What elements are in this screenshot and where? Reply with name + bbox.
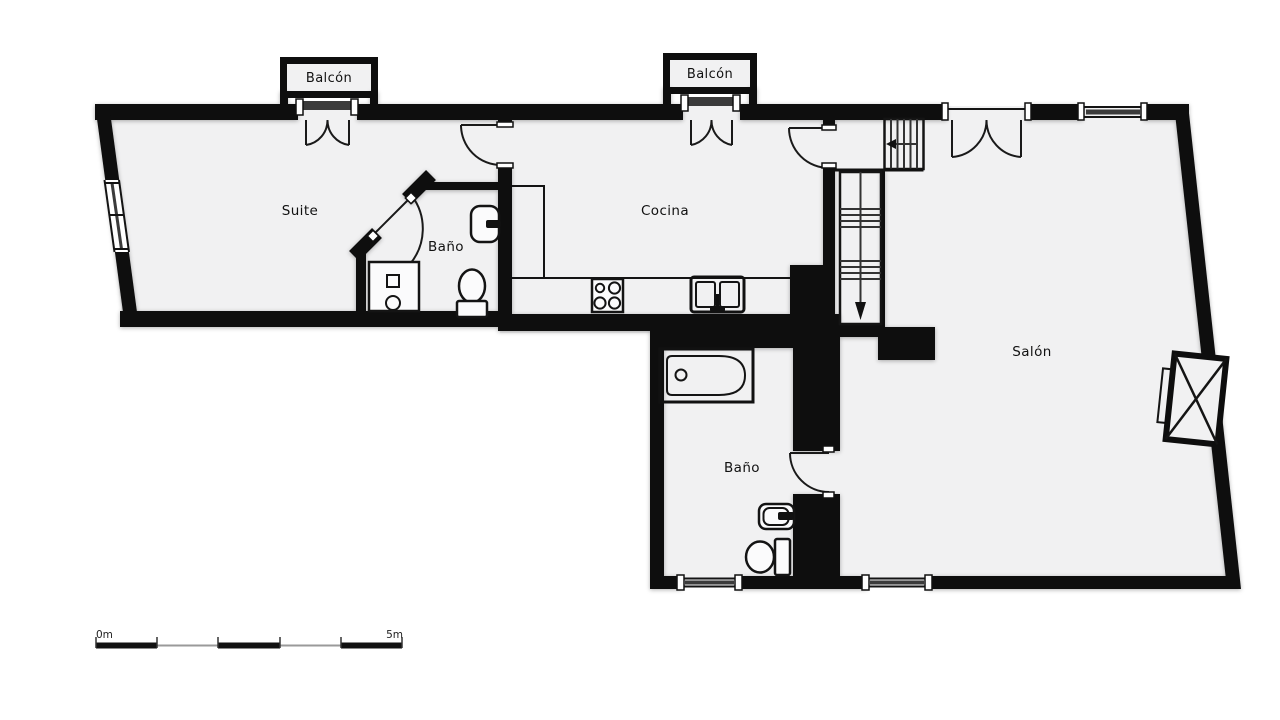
window-jamb	[677, 575, 684, 590]
scale-segment	[96, 643, 157, 649]
wall-under-stairs	[831, 325, 884, 337]
wall-bano2-salon-upper	[793, 331, 840, 451]
window-jamb	[296, 99, 303, 115]
label-suite: Suite	[282, 203, 318, 219]
door-jamb	[822, 125, 836, 130]
salon-bottom-window-glazing	[870, 581, 924, 585]
glass-band	[870, 581, 924, 585]
window-jamb	[681, 95, 688, 111]
wall-top-2	[357, 104, 683, 120]
window-jamb	[733, 95, 740, 111]
floor-plan: Balcón Balcón	[0, 0, 1280, 720]
toilet-bowl-icon	[459, 270, 485, 303]
balcony2-door-glazing	[688, 97, 735, 106]
sink-tap	[778, 512, 794, 520]
label-bano-suite: Baño	[428, 239, 464, 255]
window-jamb	[942, 103, 948, 120]
glass-band	[685, 581, 734, 585]
label-salon: Salón	[1012, 344, 1051, 360]
label-cocina: Cocina	[641, 203, 689, 219]
sink-tap-base	[710, 306, 725, 311]
door-jamb	[823, 446, 834, 452]
scale-segment	[341, 643, 402, 649]
glass-band	[1086, 110, 1140, 115]
wall-bottom-3	[927, 576, 1233, 589]
wall-hall-block	[878, 327, 935, 360]
wall-pillar-cocina	[790, 265, 835, 348]
wall-suite-bottom	[120, 311, 512, 327]
glass-band	[688, 97, 735, 106]
window-jamb	[1025, 103, 1031, 120]
window-jamb	[1141, 103, 1147, 120]
wall-top-1	[95, 104, 298, 120]
wall-bano2-left	[650, 331, 664, 589]
window-jamb	[351, 99, 358, 115]
door-jamb	[497, 122, 513, 127]
wall-top-4	[1026, 104, 1083, 120]
glass-band	[303, 101, 352, 110]
toilet-tank	[457, 301, 487, 317]
toilet-tank	[775, 539, 790, 575]
wall-suite-cocina	[498, 166, 512, 331]
window-jamb	[862, 575, 869, 590]
label-bano-principal: Baño	[724, 460, 760, 476]
scale-bar: 0m 5m	[96, 629, 403, 649]
toilet-bowl-icon	[746, 542, 774, 573]
wall-bano2-salon-lower	[793, 494, 840, 589]
wall-cocina-bottom	[498, 314, 664, 331]
salon-window-glazing	[1086, 110, 1140, 115]
door-jamb	[823, 492, 834, 498]
window-jamb	[925, 575, 932, 590]
scale-segment	[218, 643, 280, 649]
balcony-center-label: Balcón	[687, 67, 733, 82]
balcony1-door-glazing	[303, 101, 352, 110]
bano2-window-glazing	[685, 581, 734, 585]
window-jamb	[1078, 103, 1084, 120]
door-jamb	[822, 163, 836, 168]
scale-end-label: 5m	[386, 629, 403, 641]
scale-start-label: 0m	[96, 629, 113, 641]
sink-tap	[486, 220, 501, 228]
wall-top-3	[740, 104, 947, 120]
wall-bano1-top	[424, 182, 498, 190]
balcony-left-label: Balcón	[306, 71, 352, 86]
door-jamb	[497, 163, 513, 168]
window-jamb	[735, 575, 742, 590]
